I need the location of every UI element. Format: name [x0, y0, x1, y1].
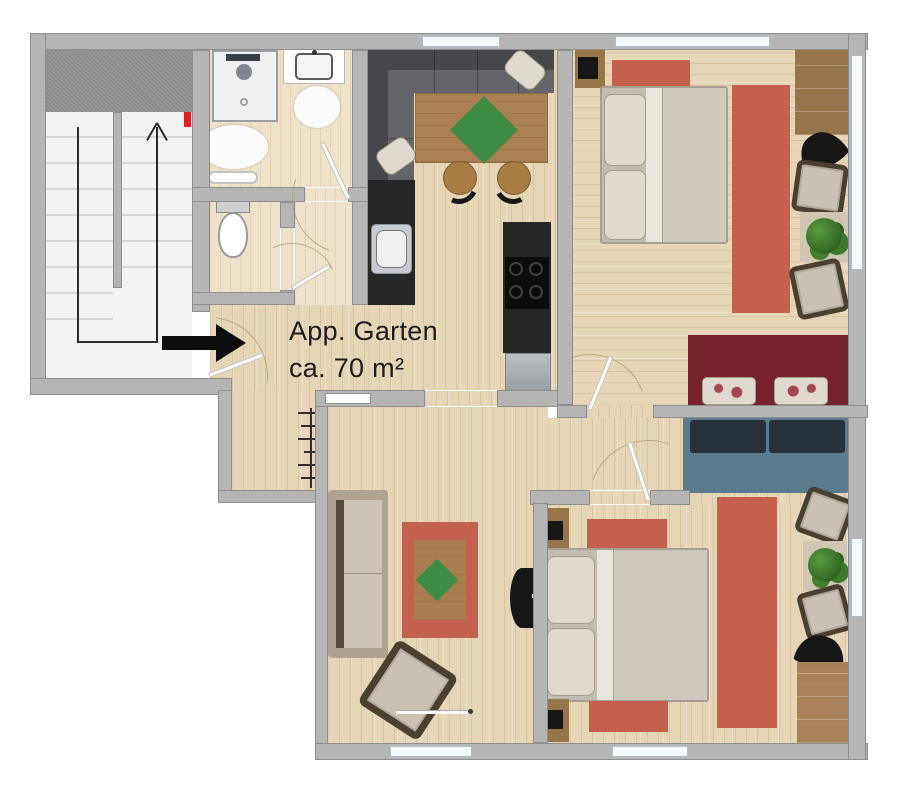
wall-mid-right-b [653, 405, 868, 418]
runner-rug-top [732, 85, 790, 313]
bed-blanket [662, 88, 726, 242]
bed-pillow [547, 628, 595, 696]
sofa-blue-cushion [690, 420, 766, 453]
bed-pillow [604, 170, 646, 240]
tv [510, 568, 534, 628]
cooktop-burner [509, 285, 523, 299]
entrance-arrow [162, 336, 216, 350]
stool [443, 161, 477, 195]
bedroom-bottom-rug [589, 701, 668, 732]
bed-blanket [613, 550, 707, 700]
towel-rail [208, 171, 258, 184]
label-apartment-name: App. Garten [289, 316, 438, 347]
floor-sill-line [396, 710, 470, 714]
bed-pillow [604, 94, 646, 166]
bed-pillow [547, 556, 595, 624]
bed-sheet [597, 550, 613, 700]
window-bottom-living [390, 745, 472, 758]
sofa-seam [434, 50, 435, 93]
radiator [310, 408, 312, 488]
toilet-bowl [218, 212, 248, 258]
stair-flight-left [46, 112, 113, 320]
bench-pillow [702, 377, 756, 405]
wall-left [30, 33, 46, 395]
sofa-living-back [336, 500, 344, 648]
bath-rug-round [294, 86, 340, 128]
doorway-panel [325, 393, 371, 404]
shower-fixture [226, 54, 260, 61]
bath-rug-oval [200, 125, 268, 169]
nightstand-lamp [546, 710, 563, 729]
red-mark [184, 112, 191, 127]
washbasin-faucet [312, 50, 317, 55]
window-right-bottom [850, 538, 864, 617]
wall-stair-right [192, 50, 210, 312]
plant [806, 218, 842, 254]
wall-living-left [315, 390, 328, 760]
sofa-blue-cushion [769, 420, 845, 453]
entrance-arrow-head [216, 324, 246, 362]
sofa-living-seats [344, 500, 382, 648]
sofa-seam [344, 573, 382, 574]
cooktop-burner [509, 262, 523, 276]
bed-sheet [646, 88, 662, 242]
plant [808, 548, 842, 582]
opening-kitchen-living [425, 391, 497, 406]
wall-bathroom-bottom-a [192, 187, 305, 202]
wall-kitchen-bedroom [557, 50, 573, 405]
window-bottom-bedroom [612, 745, 688, 758]
shower-head [236, 64, 252, 80]
stair-landing [46, 50, 192, 112]
stairs-walkline-right [156, 127, 158, 343]
stairs-walkline-bottom [77, 341, 158, 343]
stair-flight-divider [113, 112, 122, 288]
runner-rug-bottom [717, 497, 777, 728]
sofa-seam [477, 50, 478, 93]
cooktop-burner [529, 285, 543, 299]
desk [795, 50, 848, 135]
door-stop-dot [468, 709, 473, 714]
label-area: ca. 70 m² [289, 353, 404, 384]
floor-plan: App. Garten ca. 70 m² [0, 0, 900, 795]
stairs-walkline-left [77, 127, 79, 343]
window-top-kitchen [422, 35, 500, 48]
stool [497, 161, 531, 195]
tv-box [578, 57, 598, 79]
armchair [788, 257, 850, 321]
shower-drain [240, 98, 248, 106]
nightstand-lamp [546, 521, 563, 540]
window-right-top [850, 55, 864, 270]
cooktop-burner [529, 262, 543, 276]
floor-mat-wood [797, 662, 848, 743]
window-top-bedroom [615, 35, 770, 48]
washbasin-sink [295, 53, 333, 80]
bench-pillow [774, 377, 828, 405]
wall-living-bedroom [533, 503, 548, 743]
wall-corridor-bottom [218, 490, 317, 503]
armchair [791, 159, 850, 218]
